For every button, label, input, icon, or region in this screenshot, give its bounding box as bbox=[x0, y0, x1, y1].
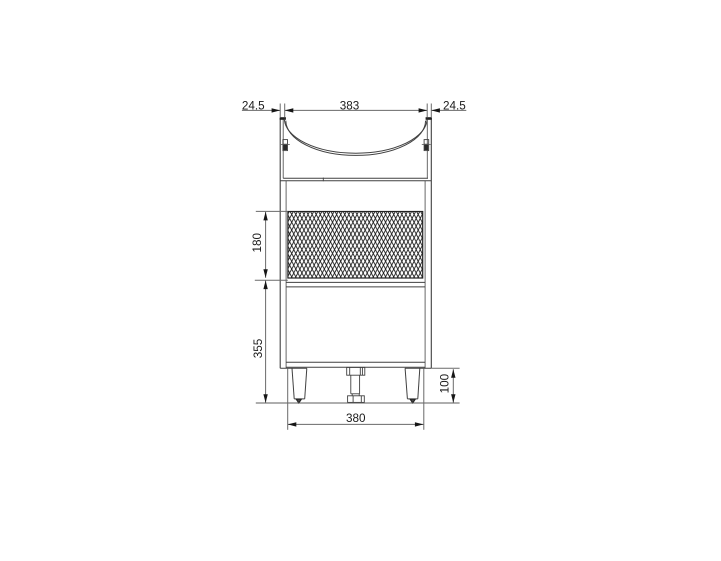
svg-text:355: 355 bbox=[252, 338, 265, 358]
svg-text:24.5: 24.5 bbox=[242, 100, 265, 113]
svg-text:380: 380 bbox=[346, 412, 366, 425]
svg-text:24.5: 24.5 bbox=[443, 100, 466, 113]
svg-text:180: 180 bbox=[251, 233, 264, 253]
svg-text:100: 100 bbox=[439, 373, 452, 393]
svg-text:383: 383 bbox=[340, 100, 360, 113]
